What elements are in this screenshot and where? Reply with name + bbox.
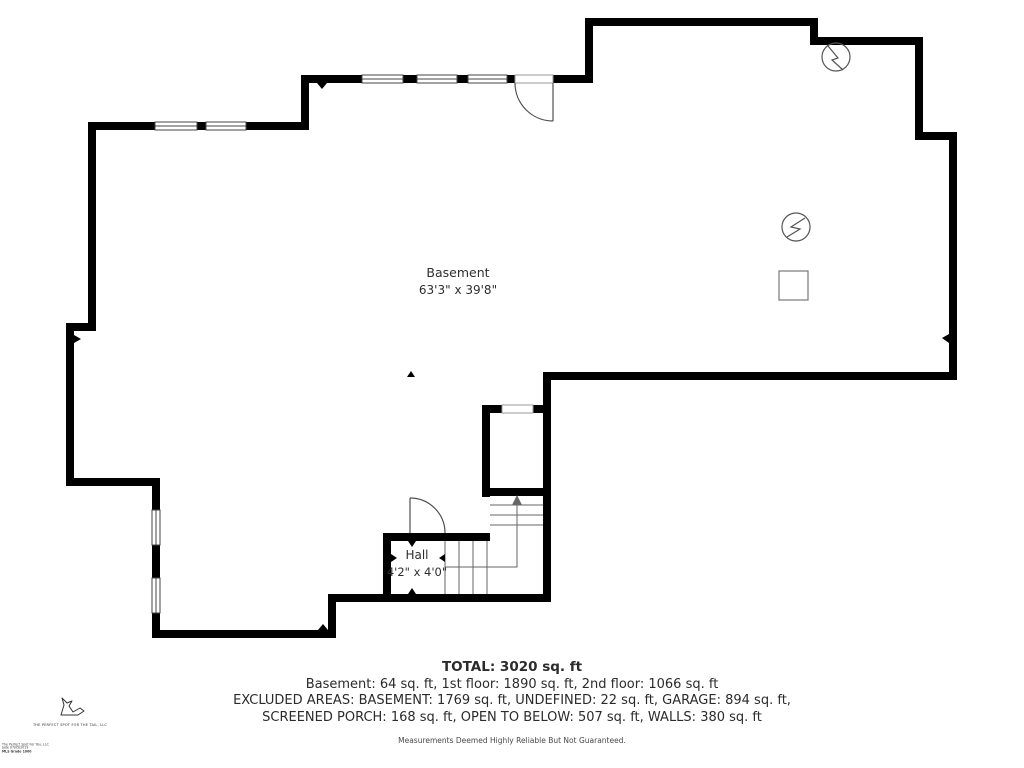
window-icon bbox=[152, 578, 160, 613]
fine-print: The Perfect Spot For You, LLC Jade 07/05… bbox=[2, 743, 49, 754]
wall bbox=[152, 478, 160, 638]
wall-stub bbox=[482, 405, 502, 413]
wall-stair-shaft bbox=[482, 405, 490, 497]
window-icon bbox=[362, 75, 403, 83]
tick-icon bbox=[407, 371, 415, 377]
wall bbox=[810, 37, 923, 45]
doors bbox=[410, 75, 553, 533]
wall bbox=[88, 122, 96, 331]
room-dimensions: 4'2" x 4'0" bbox=[357, 564, 477, 580]
floorplan-drawing bbox=[0, 0, 1024, 768]
room-label-hall: Hall 4'2" x 4'0" bbox=[357, 547, 477, 580]
stair-direction-arrow-icon bbox=[512, 495, 522, 505]
door-opening bbox=[515, 75, 553, 83]
tick-icon bbox=[317, 83, 327, 89]
wall bbox=[949, 132, 957, 380]
area-summary: TOTAL: 3020 sq. ft Basement: 64 sq. ft, … bbox=[0, 659, 1024, 745]
dimension-ticks bbox=[74, 83, 949, 630]
wall bbox=[543, 372, 957, 380]
excluded-areas-text-2: SCREENED PORCH: 168 sq. ft, OPEN TO BELO… bbox=[0, 710, 1024, 727]
fine-print-line: MLS Grade 1000 bbox=[2, 750, 49, 754]
wall-stair-divider bbox=[482, 488, 543, 496]
total-area-text: TOTAL: 3020 sq. ft bbox=[0, 659, 1024, 677]
window-icon bbox=[417, 75, 457, 83]
tick-icon bbox=[318, 624, 328, 630]
wall bbox=[543, 372, 551, 602]
wall bbox=[66, 323, 74, 486]
electrical-outlet-icon bbox=[782, 213, 810, 241]
window-icon bbox=[468, 75, 507, 83]
wall bbox=[585, 18, 818, 26]
tick-icon bbox=[408, 588, 416, 594]
fixture-square-icon bbox=[779, 271, 808, 300]
windows bbox=[152, 75, 507, 613]
room-label-basement: Basement 63'3" x 39'8" bbox=[358, 265, 558, 298]
symbols bbox=[779, 43, 850, 300]
wall bbox=[88, 122, 308, 130]
electrical-outlet-icon bbox=[822, 43, 850, 71]
wall-hall-top bbox=[383, 533, 490, 541]
wall bbox=[152, 630, 336, 638]
wall bbox=[66, 478, 160, 486]
room-name: Hall bbox=[357, 547, 477, 564]
logo-text: THE PERFECT SPOT FOR THE TAIL, LLC bbox=[30, 723, 110, 727]
wall bbox=[301, 75, 309, 130]
entry-door-swing-icon bbox=[515, 83, 553, 121]
wall bbox=[915, 37, 923, 140]
wall-stub bbox=[533, 405, 543, 413]
window-icon bbox=[206, 122, 246, 130]
tick-icon bbox=[74, 335, 81, 343]
tick-icon bbox=[942, 334, 949, 343]
room-dimensions: 63'3" x 39'8" bbox=[358, 282, 558, 298]
floorplan-page: Basement 63'3" x 39'8" Hall 4'2" x 4'0" … bbox=[0, 0, 1024, 768]
wall bbox=[585, 18, 593, 83]
wall bbox=[328, 594, 551, 602]
company-logo: THE PERFECT SPOT FOR THE TAIL, LLC bbox=[30, 694, 110, 727]
room-name: Basement bbox=[358, 265, 558, 282]
hall-door-swing-icon bbox=[410, 498, 445, 533]
disclaimer-text: Measurements Deemed Highly Reliable But … bbox=[0, 736, 1024, 745]
window-icon bbox=[152, 510, 160, 545]
excluded-areas-text-1: EXCLUDED AREAS: BASEMENT: 1769 sq. ft, U… bbox=[0, 693, 1024, 710]
exterior-walls bbox=[66, 18, 957, 638]
window-icon bbox=[155, 122, 197, 130]
floor-areas-text: Basement: 64 sq. ft, 1st floor: 1890 sq.… bbox=[0, 677, 1024, 694]
stair-shaft-opening bbox=[502, 405, 533, 413]
dog-icon bbox=[52, 694, 88, 718]
